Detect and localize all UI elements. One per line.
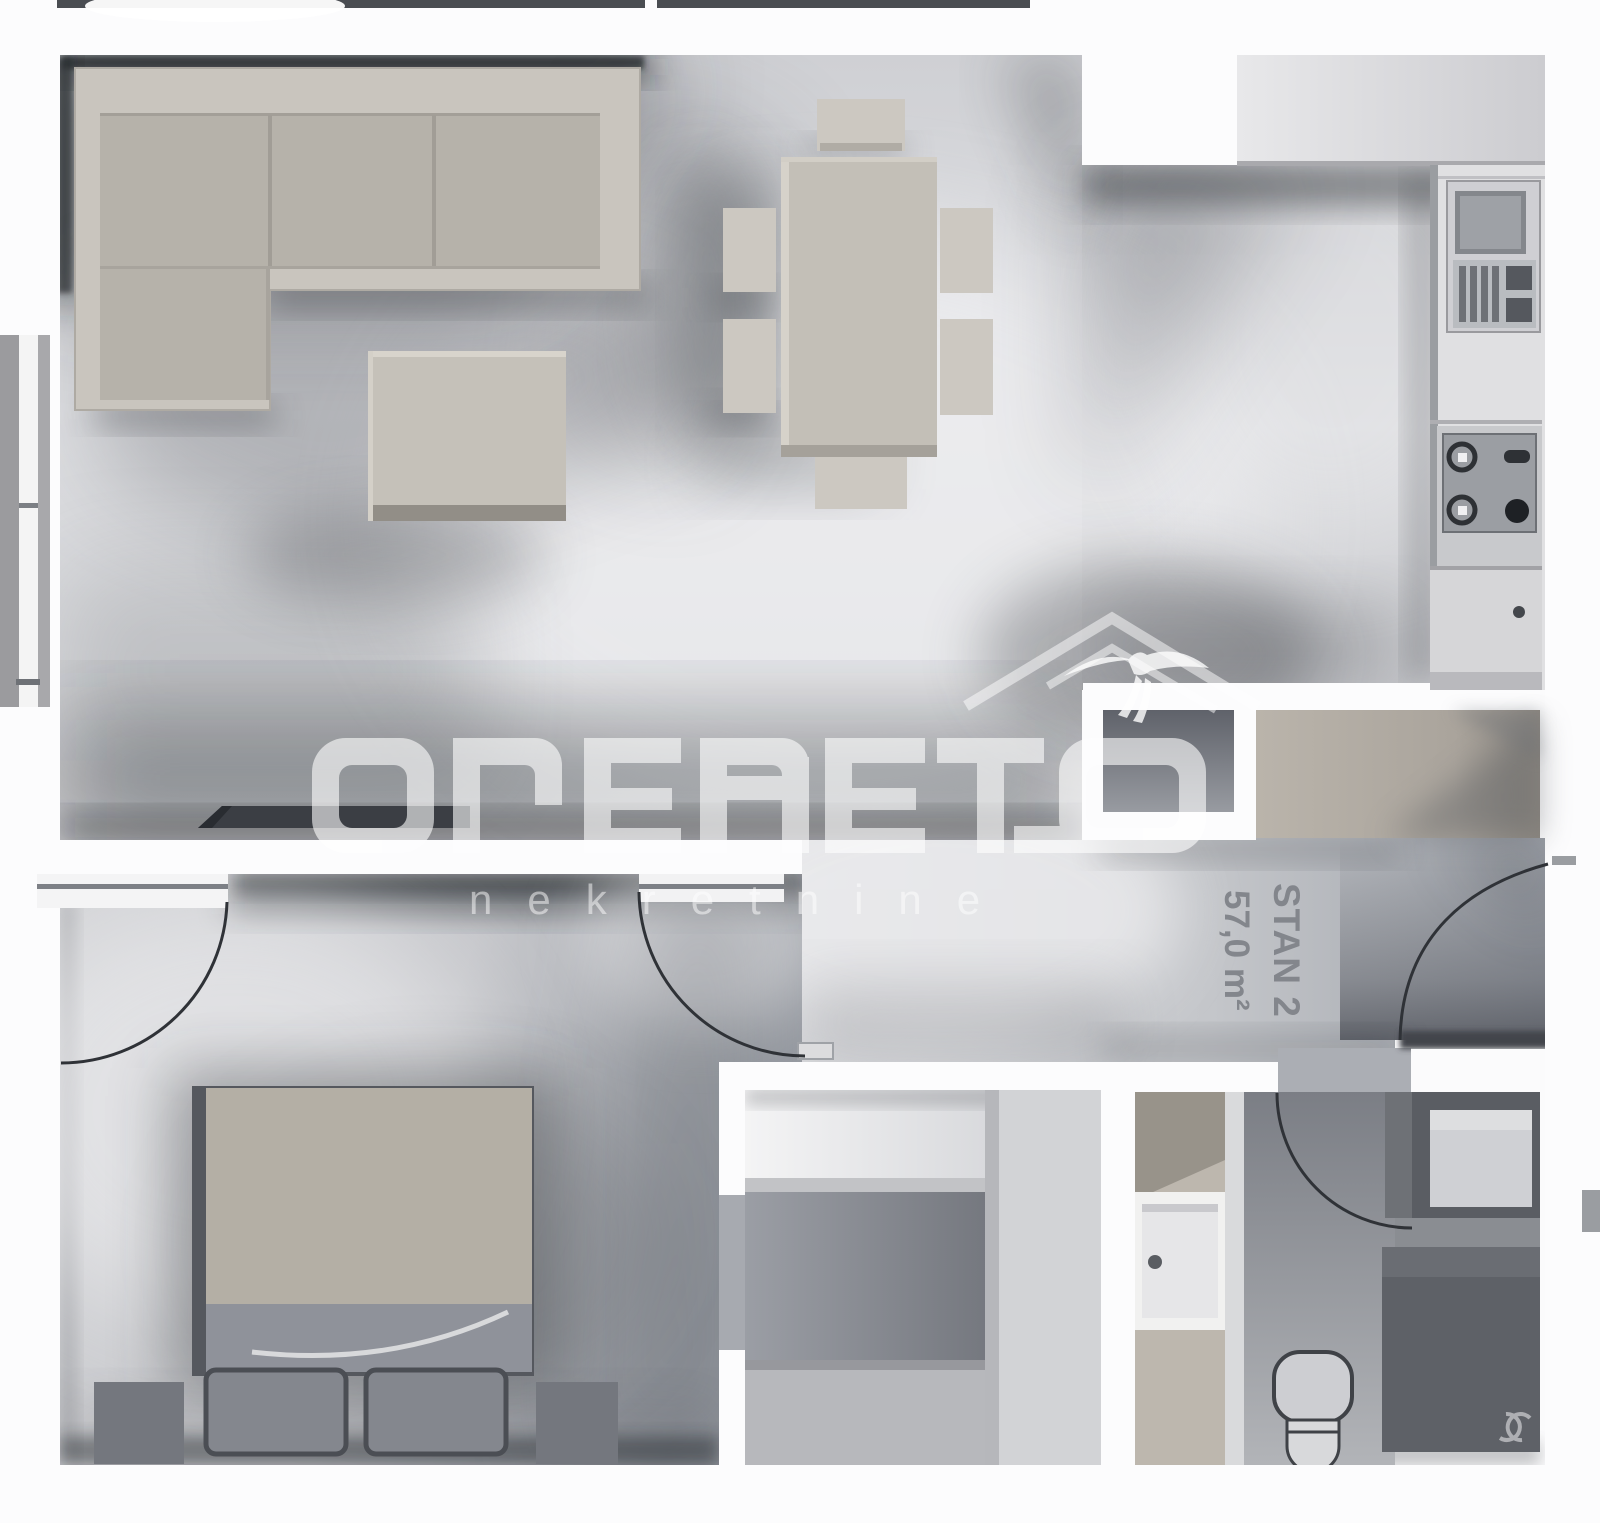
svg-text:STAN 2: STAN 2 [1266,883,1307,1018]
svg-text:nekretnine: nekretnine [469,876,1015,923]
svg-text:57,0 m²: 57,0 m² [1217,890,1256,1011]
